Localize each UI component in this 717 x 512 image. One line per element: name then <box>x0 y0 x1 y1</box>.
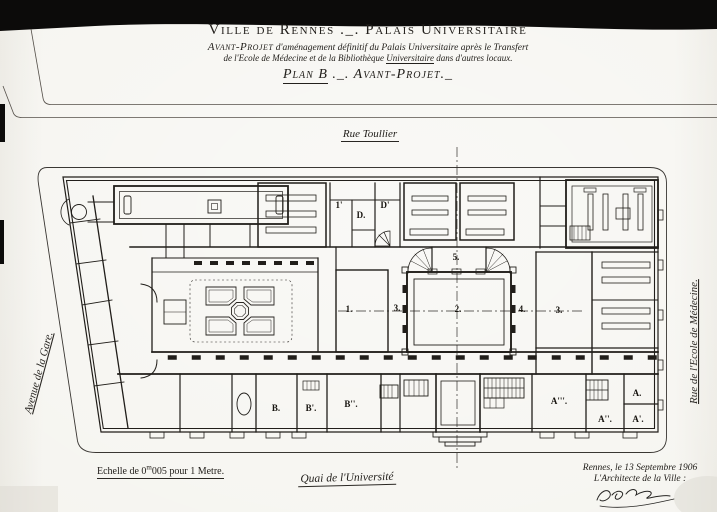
rue-toullier-text: Rue Toullier <box>341 128 399 142</box>
entrance-steps <box>433 432 487 446</box>
quai-text: Quai de l'Université <box>298 471 396 488</box>
subtitle-rest: d'aménagement définitif du Palais Univer… <box>276 43 529 53</box>
grand-staircase <box>484 378 524 408</box>
room-label-bp: B'. <box>306 403 317 413</box>
room-label-a: A. <box>633 388 642 398</box>
garden-basin <box>232 303 249 320</box>
street-label-avenue-de-la-gare: Avenue de la Gare. <box>22 331 56 416</box>
place-date: Rennes, le 13 Septembre 1906 <box>573 463 707 474</box>
scale-pre: Echelle de 0 <box>97 466 146 477</box>
south-wing <box>180 374 658 446</box>
room-label-bpp: B''. <box>344 399 357 409</box>
scale-post: 005 pour 1 Metre. <box>152 466 224 477</box>
room-label-ap: A'. <box>632 414 643 424</box>
room-label-1p: 1' <box>335 200 342 210</box>
stair-west-of-hall <box>404 380 428 396</box>
room-label-b: B. <box>272 403 280 413</box>
room-label-app: A''. <box>598 414 612 424</box>
oval-vestibule <box>237 393 251 415</box>
west-wing <box>70 196 128 428</box>
plan-designation: Plan B ._. Avant-Projet._ <box>198 68 538 83</box>
signature-block: Rennes, le 13 Septembre 1906 L'Architect… <box>573 463 707 485</box>
hall-one <box>318 247 398 398</box>
plan-designation-rest: ._. Avant-Projet._ <box>332 67 453 82</box>
scale-text: Echelle de 0m005 pour 1 Metre. <box>97 466 224 479</box>
subtitle2-underlined: Universitaire <box>386 53 434 64</box>
north-right-bench-rooms <box>404 183 514 240</box>
architect-signature <box>597 490 674 508</box>
photo-edge-mark-2 <box>0 220 4 264</box>
plan-designation-lead: Plan B <box>283 67 328 84</box>
scale-note: Echelle de 0m005 pour 1 Metre. <box>97 464 224 477</box>
room-label-3w: 3. <box>394 303 401 313</box>
pedestal <box>208 200 221 213</box>
room-label-2: 2. <box>455 304 462 314</box>
stair-a-wing <box>586 380 608 400</box>
photo-edge-mark-1 <box>0 104 5 142</box>
street-label-rue-ecole-medecine: Rue de l'Ecole de Médecine. <box>688 279 700 405</box>
room-label-4: 4. <box>519 304 526 314</box>
subtitle2-pre: de l'Ecole de Médecine et de la Biblioth… <box>223 53 386 63</box>
small-stair-fan <box>375 231 390 246</box>
room-label-3e: 3. <box>556 305 563 315</box>
subtitle-lead: Avant-Projet <box>208 41 274 53</box>
subtitle2-post: dans d'autres locaux. <box>434 53 513 63</box>
plan-title: Ville de Rennes ._. Palais Universitaire <box>198 23 538 39</box>
entrance-hall-inner <box>441 381 475 425</box>
room-label-d: D. <box>357 210 366 220</box>
room-label-5: 5. <box>453 252 460 262</box>
north-bench-hall <box>258 183 326 247</box>
signatory-title: L'Architecte de la Ville : <box>573 474 707 485</box>
street-label-rue-toullier: Rue Toullier <box>300 128 440 140</box>
street-label-quai: Quai de l'Université <box>282 470 412 485</box>
room-label-1: 1. <box>346 304 353 314</box>
room-label-appp: A'''. <box>551 396 567 406</box>
plan-subtitle-line2: de l'Ecole de Médecine et de la Biblioth… <box>198 54 538 63</box>
rotunda <box>72 205 87 220</box>
title-block: Ville de Rennes ._. Palais Universitaire… <box>198 23 538 83</box>
lecture-hall <box>540 177 658 248</box>
document-page: 1. 1' D. D' 5. 2. 3. 4. 3. B. B'. B''. A… <box>0 0 717 512</box>
stair-sw-hall-one <box>380 385 398 398</box>
photo-shadow-bottom-left <box>0 486 58 512</box>
south-corridor <box>118 352 658 374</box>
room-label-dp: D' <box>381 200 390 210</box>
garden-parterres <box>190 280 292 342</box>
